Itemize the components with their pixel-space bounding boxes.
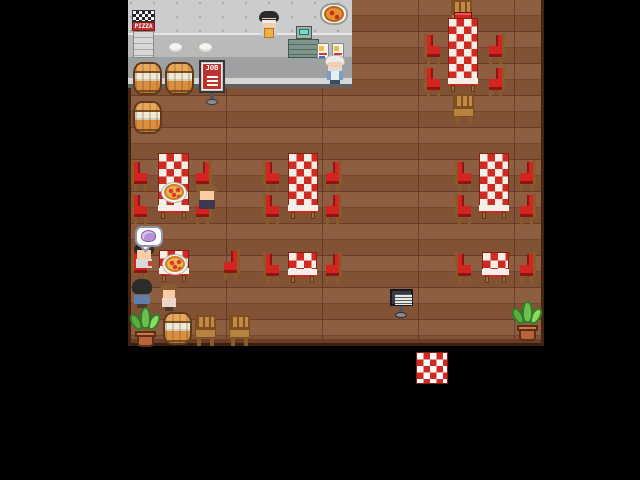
red-chair bbox=[424, 33, 441, 64]
table-leg bbox=[485, 276, 489, 283]
feet bbox=[330, 80, 340, 84]
chair-post bbox=[533, 193, 536, 218]
page-background: { "scene": { "description": "Top-down pi… bbox=[0, 0, 640, 480]
chair-legs bbox=[458, 184, 461, 191]
chair-seat bbox=[266, 206, 279, 217]
body bbox=[134, 295, 150, 304]
red-chair bbox=[519, 160, 536, 191]
dining-table bbox=[479, 153, 509, 219]
barrel bbox=[163, 312, 192, 345]
chair-seat bbox=[427, 79, 440, 90]
red-chair bbox=[325, 193, 342, 224]
body bbox=[162, 298, 176, 307]
chair-post bbox=[339, 193, 342, 218]
chair-back bbox=[195, 315, 216, 329]
chair-seat bbox=[489, 46, 502, 57]
register-screen-icon bbox=[299, 29, 309, 35]
wooden-chair bbox=[194, 315, 217, 346]
face bbox=[163, 290, 175, 298]
chair-post bbox=[533, 252, 536, 277]
chair-post bbox=[502, 66, 505, 91]
chair-seat bbox=[520, 173, 533, 184]
job-sign-label: JOB bbox=[202, 65, 222, 72]
chair-legs bbox=[266, 276, 269, 283]
chair-seat bbox=[489, 79, 502, 90]
oven-sign-label: PIZZA bbox=[132, 22, 155, 31]
checkered-tablecloth bbox=[448, 18, 478, 86]
npc-clerk[interactable] bbox=[258, 11, 280, 41]
chair-legs bbox=[499, 57, 502, 64]
chair-legs bbox=[427, 90, 430, 97]
red-chair bbox=[424, 66, 441, 97]
red-chair bbox=[488, 33, 505, 64]
table-leg bbox=[471, 85, 475, 92]
dining-table bbox=[288, 153, 318, 219]
chair-seat bbox=[266, 265, 279, 276]
chair-seat bbox=[196, 173, 209, 184]
chair-post bbox=[209, 160, 212, 185]
counter-plate bbox=[198, 42, 213, 53]
red-chair bbox=[263, 252, 280, 283]
red-chair bbox=[519, 252, 536, 283]
chair-seat bbox=[520, 265, 533, 276]
red-chair bbox=[455, 160, 472, 191]
chair-seat bbox=[134, 173, 147, 184]
entrance-mat[interactable] bbox=[416, 352, 448, 384]
chair-seat bbox=[326, 206, 339, 217]
chair-legs bbox=[134, 184, 137, 191]
table-leg bbox=[311, 212, 315, 219]
pot bbox=[137, 335, 154, 347]
cash-register[interactable] bbox=[288, 26, 319, 58]
game-viewport: PIZZAJOB bbox=[128, 0, 544, 384]
table-leg bbox=[310, 276, 314, 283]
job-board-sign[interactable]: JOB bbox=[198, 60, 226, 106]
barrel bbox=[133, 62, 162, 95]
menu-stand-sign[interactable] bbox=[390, 289, 413, 319]
checkered-tablecloth bbox=[288, 153, 318, 213]
chair-seat bbox=[453, 108, 474, 117]
chair-legs bbox=[530, 184, 533, 191]
npc-child-brown-hair[interactable] bbox=[159, 284, 181, 314]
chair-legs bbox=[266, 217, 269, 224]
chair-legs bbox=[336, 276, 339, 283]
oven-drawers bbox=[133, 31, 154, 58]
pizza-oven-cabinet: PIZZA bbox=[132, 10, 155, 58]
chair-legs bbox=[530, 276, 533, 283]
speech-bubble-slime bbox=[135, 226, 163, 252]
chair-seat bbox=[458, 265, 471, 276]
red-chair bbox=[131, 193, 148, 224]
leaf-icon bbox=[140, 307, 151, 329]
pizza-dish bbox=[161, 182, 187, 203]
chair-seat bbox=[195, 329, 216, 338]
apron bbox=[264, 28, 274, 38]
chair-seat bbox=[224, 262, 237, 273]
chair-seat bbox=[427, 46, 440, 57]
counter-plate bbox=[168, 42, 183, 53]
red-chair bbox=[263, 193, 280, 224]
red-chair bbox=[455, 193, 472, 224]
red-chair bbox=[131, 160, 148, 191]
chair-legs bbox=[206, 217, 209, 224]
npc-old-man[interactable] bbox=[324, 55, 346, 85]
chair-back bbox=[229, 315, 250, 329]
chair-post bbox=[339, 160, 342, 185]
dining-table-small bbox=[482, 252, 509, 283]
dining-table-small bbox=[288, 252, 317, 283]
pot bbox=[519, 329, 536, 341]
sign-base bbox=[206, 99, 218, 105]
chair-seat bbox=[326, 173, 339, 184]
red-chair bbox=[488, 66, 505, 97]
chair-legs bbox=[134, 217, 137, 224]
chair-legs bbox=[336, 217, 339, 224]
feet bbox=[165, 307, 173, 311]
pizza-icon bbox=[324, 6, 344, 22]
sign-frame bbox=[390, 289, 413, 306]
barrel bbox=[133, 101, 162, 134]
table-leg bbox=[182, 212, 186, 219]
pizza-dish bbox=[162, 254, 188, 275]
chair-seat bbox=[229, 329, 250, 338]
slime-icon bbox=[141, 230, 156, 242]
wooden-chair bbox=[452, 94, 475, 125]
chair-legs bbox=[455, 117, 459, 125]
barrel bbox=[165, 62, 194, 95]
chair-seat bbox=[266, 173, 279, 184]
table-leg bbox=[291, 276, 295, 283]
chair-seat bbox=[134, 206, 147, 217]
chair-legs bbox=[234, 273, 237, 280]
chair-seat bbox=[520, 206, 533, 217]
chair-post bbox=[339, 252, 342, 277]
table-leg bbox=[502, 212, 506, 219]
chair-legs bbox=[499, 90, 502, 97]
checkered-tablecloth bbox=[479, 153, 509, 213]
dining-table bbox=[448, 18, 478, 92]
potted-plant bbox=[129, 305, 162, 347]
table-leg bbox=[291, 212, 295, 219]
hair bbox=[132, 279, 152, 294]
register-body bbox=[288, 39, 319, 58]
table-leg bbox=[482, 212, 486, 219]
held-item-icon bbox=[148, 261, 152, 266]
table-leg bbox=[502, 276, 506, 283]
chair-seat bbox=[326, 265, 339, 276]
npc-diner-brown-hair[interactable] bbox=[196, 184, 218, 214]
pizza-icon bbox=[165, 256, 185, 272]
face bbox=[200, 191, 214, 200]
register-display-unit bbox=[296, 26, 312, 39]
body bbox=[327, 71, 343, 80]
red-chair bbox=[519, 193, 536, 224]
chair-legs bbox=[427, 57, 430, 64]
checkered-tablecloth bbox=[482, 252, 509, 277]
table-leg bbox=[162, 275, 166, 282]
chair-legs bbox=[197, 338, 201, 346]
checkered-tablecloth bbox=[288, 252, 317, 277]
body bbox=[199, 200, 215, 209]
red-chair bbox=[325, 252, 342, 283]
red-chair bbox=[325, 160, 342, 191]
wooden-chair bbox=[228, 315, 251, 346]
chair-back bbox=[453, 94, 474, 108]
sign-base bbox=[395, 312, 407, 318]
chair-legs bbox=[530, 217, 533, 224]
chair-post bbox=[533, 160, 536, 185]
chair-legs bbox=[458, 276, 461, 283]
table-leg bbox=[182, 275, 186, 282]
chair-post bbox=[237, 249, 240, 274]
chair-post bbox=[502, 33, 505, 58]
checker-trim bbox=[132, 10, 155, 22]
chair-legs bbox=[336, 184, 339, 191]
sign-text-lines bbox=[395, 294, 412, 305]
chair-seat bbox=[458, 173, 471, 184]
potted-plant bbox=[511, 299, 544, 341]
red-chair bbox=[455, 252, 472, 283]
glasses-icon bbox=[262, 19, 276, 23]
pizza-icon bbox=[164, 184, 184, 200]
chair-legs bbox=[458, 217, 461, 224]
red-chair bbox=[263, 160, 280, 191]
table-leg bbox=[161, 212, 165, 219]
chair-legs bbox=[266, 184, 269, 191]
leaf-icon bbox=[522, 301, 533, 323]
red-chair bbox=[223, 249, 240, 280]
sign-text-lines bbox=[207, 76, 218, 78]
chair-seat bbox=[458, 206, 471, 217]
chair-legs bbox=[231, 338, 235, 346]
table-leg bbox=[451, 85, 455, 92]
pizza-wall-sign bbox=[320, 3, 348, 25]
